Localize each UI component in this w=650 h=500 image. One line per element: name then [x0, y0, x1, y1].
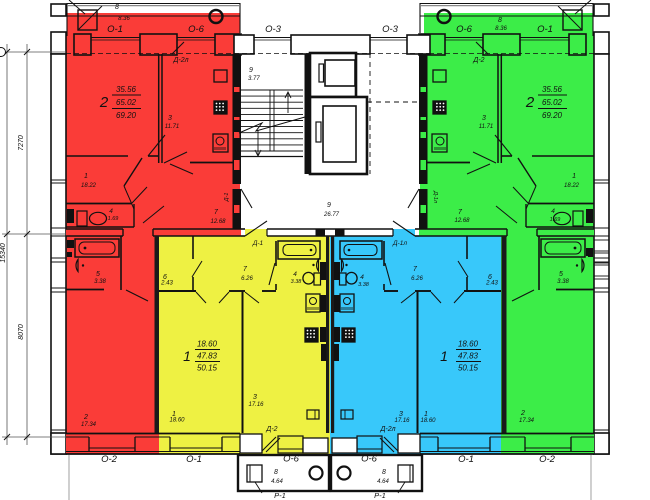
svg-text:50.15: 50.15	[458, 364, 479, 373]
svg-text:О-1: О-1	[537, 24, 553, 35]
svg-text:3: 3	[168, 115, 172, 122]
svg-text:47.83: 47.83	[458, 352, 479, 361]
svg-text:О-1: О-1	[107, 24, 123, 35]
svg-text:4: 4	[551, 208, 555, 215]
svg-text:О-6: О-6	[361, 454, 378, 465]
svg-text:26.77: 26.77	[323, 212, 340, 218]
svg-text:Д-2: Д-2	[265, 426, 277, 433]
svg-text:18.60: 18.60	[420, 418, 436, 424]
svg-text:О-6: О-6	[188, 24, 205, 35]
svg-text:69.20: 69.20	[542, 111, 563, 120]
svg-text:4.64: 4.64	[271, 479, 283, 485]
svg-text:1.69: 1.69	[550, 217, 561, 223]
svg-text:3.38: 3.38	[557, 279, 569, 285]
svg-text:3: 3	[253, 394, 257, 401]
svg-text:4: 4	[360, 274, 364, 281]
svg-text:О-2: О-2	[101, 454, 118, 465]
svg-text:1: 1	[424, 411, 428, 418]
svg-text:Р-1: Р-1	[274, 491, 286, 500]
svg-text:3.38: 3.38	[291, 279, 303, 285]
svg-text:5: 5	[559, 271, 563, 278]
svg-text:15340: 15340	[0, 243, 7, 263]
svg-text:1.69: 1.69	[108, 216, 119, 222]
svg-text:8: 8	[115, 4, 119, 11]
svg-text:О-6: О-6	[283, 454, 300, 465]
svg-text:Р-1: Р-1	[374, 491, 386, 500]
svg-text:О-1: О-1	[186, 454, 202, 465]
svg-text:18.60: 18.60	[458, 340, 479, 349]
svg-text:17.34: 17.34	[81, 422, 97, 428]
svg-text:О-3: О-3	[265, 24, 282, 35]
svg-text:1: 1	[440, 348, 448, 364]
svg-text:7270: 7270	[18, 135, 25, 151]
svg-text:9: 9	[249, 67, 253, 74]
svg-text:35.56: 35.56	[542, 85, 563, 94]
svg-text:6.26: 6.26	[241, 276, 253, 282]
svg-text:4: 4	[109, 208, 113, 215]
svg-text:8.36: 8.36	[495, 26, 507, 32]
svg-text:6.26: 6.26	[411, 276, 423, 282]
svg-text:3: 3	[482, 115, 486, 122]
svg-text:Д-2л: Д-2л	[379, 426, 395, 433]
svg-text:Д-2л: Д-2л	[172, 57, 188, 64]
svg-text:11.71: 11.71	[479, 124, 494, 130]
svg-text:18.22: 18.22	[81, 183, 97, 189]
svg-text:О-2: О-2	[539, 454, 556, 465]
svg-text:18.22: 18.22	[564, 183, 580, 189]
svg-text:12.68: 12.68	[454, 218, 470, 224]
svg-text:2.43: 2.43	[160, 281, 173, 287]
svg-text:3.38: 3.38	[358, 282, 370, 288]
svg-text:Д-1: Д-1	[224, 193, 230, 203]
svg-text:8070: 8070	[18, 324, 25, 340]
svg-text:8.36: 8.36	[118, 16, 130, 22]
svg-text:О-3: О-3	[382, 24, 399, 35]
svg-text:О-1: О-1	[458, 454, 474, 465]
svg-text:2: 2	[83, 414, 88, 421]
svg-text:17.16: 17.16	[394, 418, 410, 424]
svg-text:50.15: 50.15	[197, 364, 218, 373]
svg-text:1: 1	[183, 348, 191, 364]
svg-text:2: 2	[99, 94, 109, 111]
svg-text:35.56: 35.56	[116, 85, 137, 94]
svg-text:17.16: 17.16	[248, 402, 264, 408]
svg-text:3.77: 3.77	[248, 76, 260, 82]
svg-text:12.68: 12.68	[210, 219, 226, 225]
svg-text:65.02: 65.02	[542, 98, 563, 107]
svg-text:1: 1	[84, 173, 88, 180]
svg-text:2: 2	[525, 94, 535, 111]
svg-text:8: 8	[382, 469, 386, 476]
svg-text:3: 3	[399, 411, 403, 418]
svg-text:2: 2	[520, 410, 525, 417]
svg-text:Д-1л: Д-1л	[432, 190, 438, 203]
svg-text:5: 5	[96, 271, 100, 278]
svg-text:4: 4	[293, 271, 297, 278]
svg-text:47.83: 47.83	[197, 352, 218, 361]
svg-text:65.02: 65.02	[116, 98, 137, 107]
svg-text:9: 9	[327, 202, 331, 209]
svg-text:18.60: 18.60	[197, 340, 218, 349]
svg-text:18.60: 18.60	[169, 418, 185, 424]
svg-text:8: 8	[274, 469, 278, 476]
svg-text:17.34: 17.34	[519, 418, 535, 424]
svg-text:Д-1л: Д-1л	[392, 240, 407, 247]
svg-text:69.20: 69.20	[116, 111, 137, 120]
svg-text:Д-2: Д-2	[472, 57, 484, 64]
svg-text:4.64: 4.64	[377, 479, 389, 485]
svg-text:8: 8	[498, 17, 502, 24]
svg-text:О-6: О-6	[456, 24, 473, 35]
svg-text:Д-1: Д-1	[252, 240, 264, 247]
svg-text:3.38: 3.38	[94, 279, 106, 285]
svg-text:11.71: 11.71	[165, 124, 180, 130]
svg-text:1: 1	[572, 173, 576, 180]
svg-text:2.43: 2.43	[485, 281, 498, 287]
